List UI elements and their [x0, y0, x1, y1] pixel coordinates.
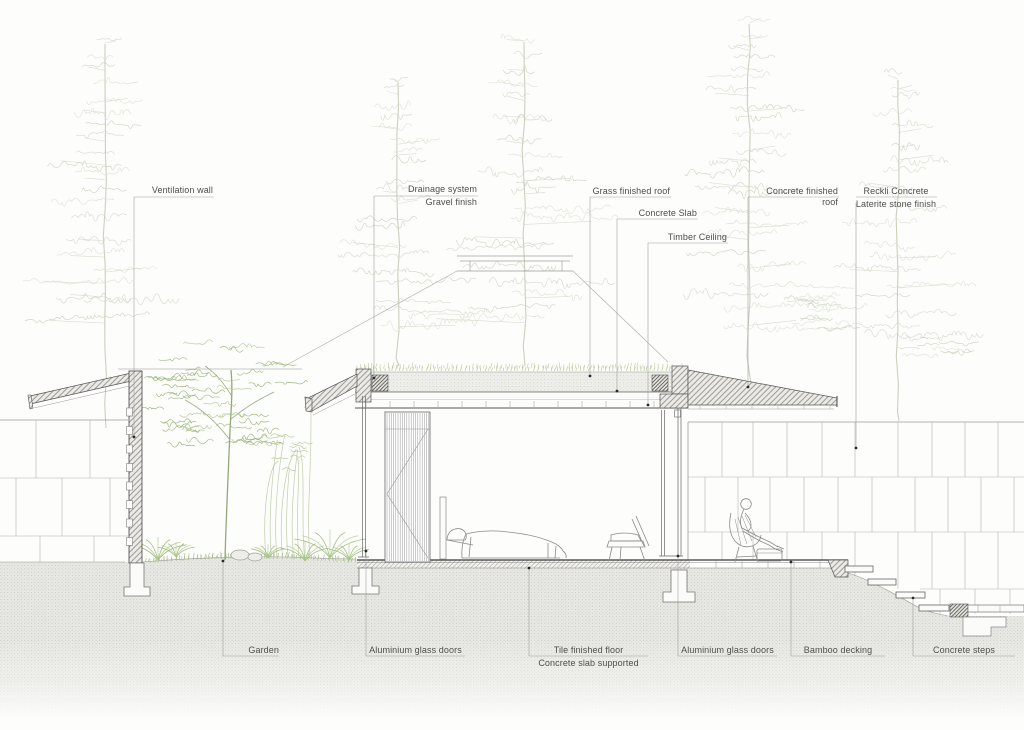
label-text: Gravel finish: [374, 197, 477, 208]
furniture: [440, 497, 784, 562]
label-text: Ventilation wall: [134, 185, 213, 196]
left-stone-wall: [0, 420, 128, 562]
label-concrete-finished-roof: Concrete finished roof: [748, 186, 838, 208]
label-text: Drainage system: [374, 184, 477, 195]
edge-beam-right: [660, 394, 688, 408]
label-text: Aluminium glass doors: [678, 645, 777, 656]
label-tile-finished-floor: Tile finished floor Concrete slab suppor…: [529, 645, 648, 669]
louvered-wardrobe: [385, 412, 430, 562]
label-text: Tile finished floor: [529, 645, 648, 656]
label-text: Concrete finished roof: [748, 186, 838, 208]
label-text: Laterite stone finish: [853, 199, 939, 210]
label-text: Reckli Concrete: [853, 186, 939, 197]
label-text: Timber Ceiling: [648, 232, 727, 243]
label-garden: Garden: [222, 645, 279, 656]
roof-drain-right: [652, 375, 668, 391]
label-text: Garden: [222, 645, 279, 656]
label-aluminium-glass-doors-left: Aluminium glass doors: [366, 645, 465, 656]
label-concrete-steps: Concrete steps: [913, 645, 1015, 656]
label-bamboo-decking: Bamboo decking: [791, 645, 885, 656]
architectural-section-drawing: Ventilation wall Drainage system Gravel …: [0, 0, 1024, 730]
label-aluminium-glass-doors-right: Aluminium glass doors: [678, 645, 777, 656]
chair: [607, 516, 649, 561]
label-timber-ceiling: Timber Ceiling: [648, 232, 727, 243]
label-reckli-concrete: Reckli Concrete Laterite stone finish: [853, 186, 939, 210]
glass-door-right: [659, 408, 683, 556]
label-drainage-system: Drainage system Gravel finish: [374, 184, 477, 208]
label-text: Concrete slab supported: [529, 658, 648, 669]
label-ventilation-wall: Ventilation wall: [134, 185, 213, 196]
label-grass-finished-roof: Grass finished roof: [590, 186, 670, 197]
parapet-right: [672, 366, 688, 394]
parapet-left: [356, 369, 371, 402]
label-text: Grass finished roof: [590, 186, 670, 197]
label-text: Concrete Slab: [617, 208, 697, 219]
eave-left: [306, 374, 357, 411]
label-concrete-slab: Concrete Slab: [617, 208, 697, 219]
label-text: Aluminium glass doors: [366, 645, 465, 656]
glass-door-left: [358, 396, 369, 557]
label-text: Concrete steps: [913, 645, 1015, 656]
background-trees: [23, 16, 984, 428]
eave-right: [688, 370, 837, 405]
label-text: Bamboo decking: [791, 645, 885, 656]
bed: [440, 497, 566, 559]
section-linework: [0, 0, 1024, 730]
